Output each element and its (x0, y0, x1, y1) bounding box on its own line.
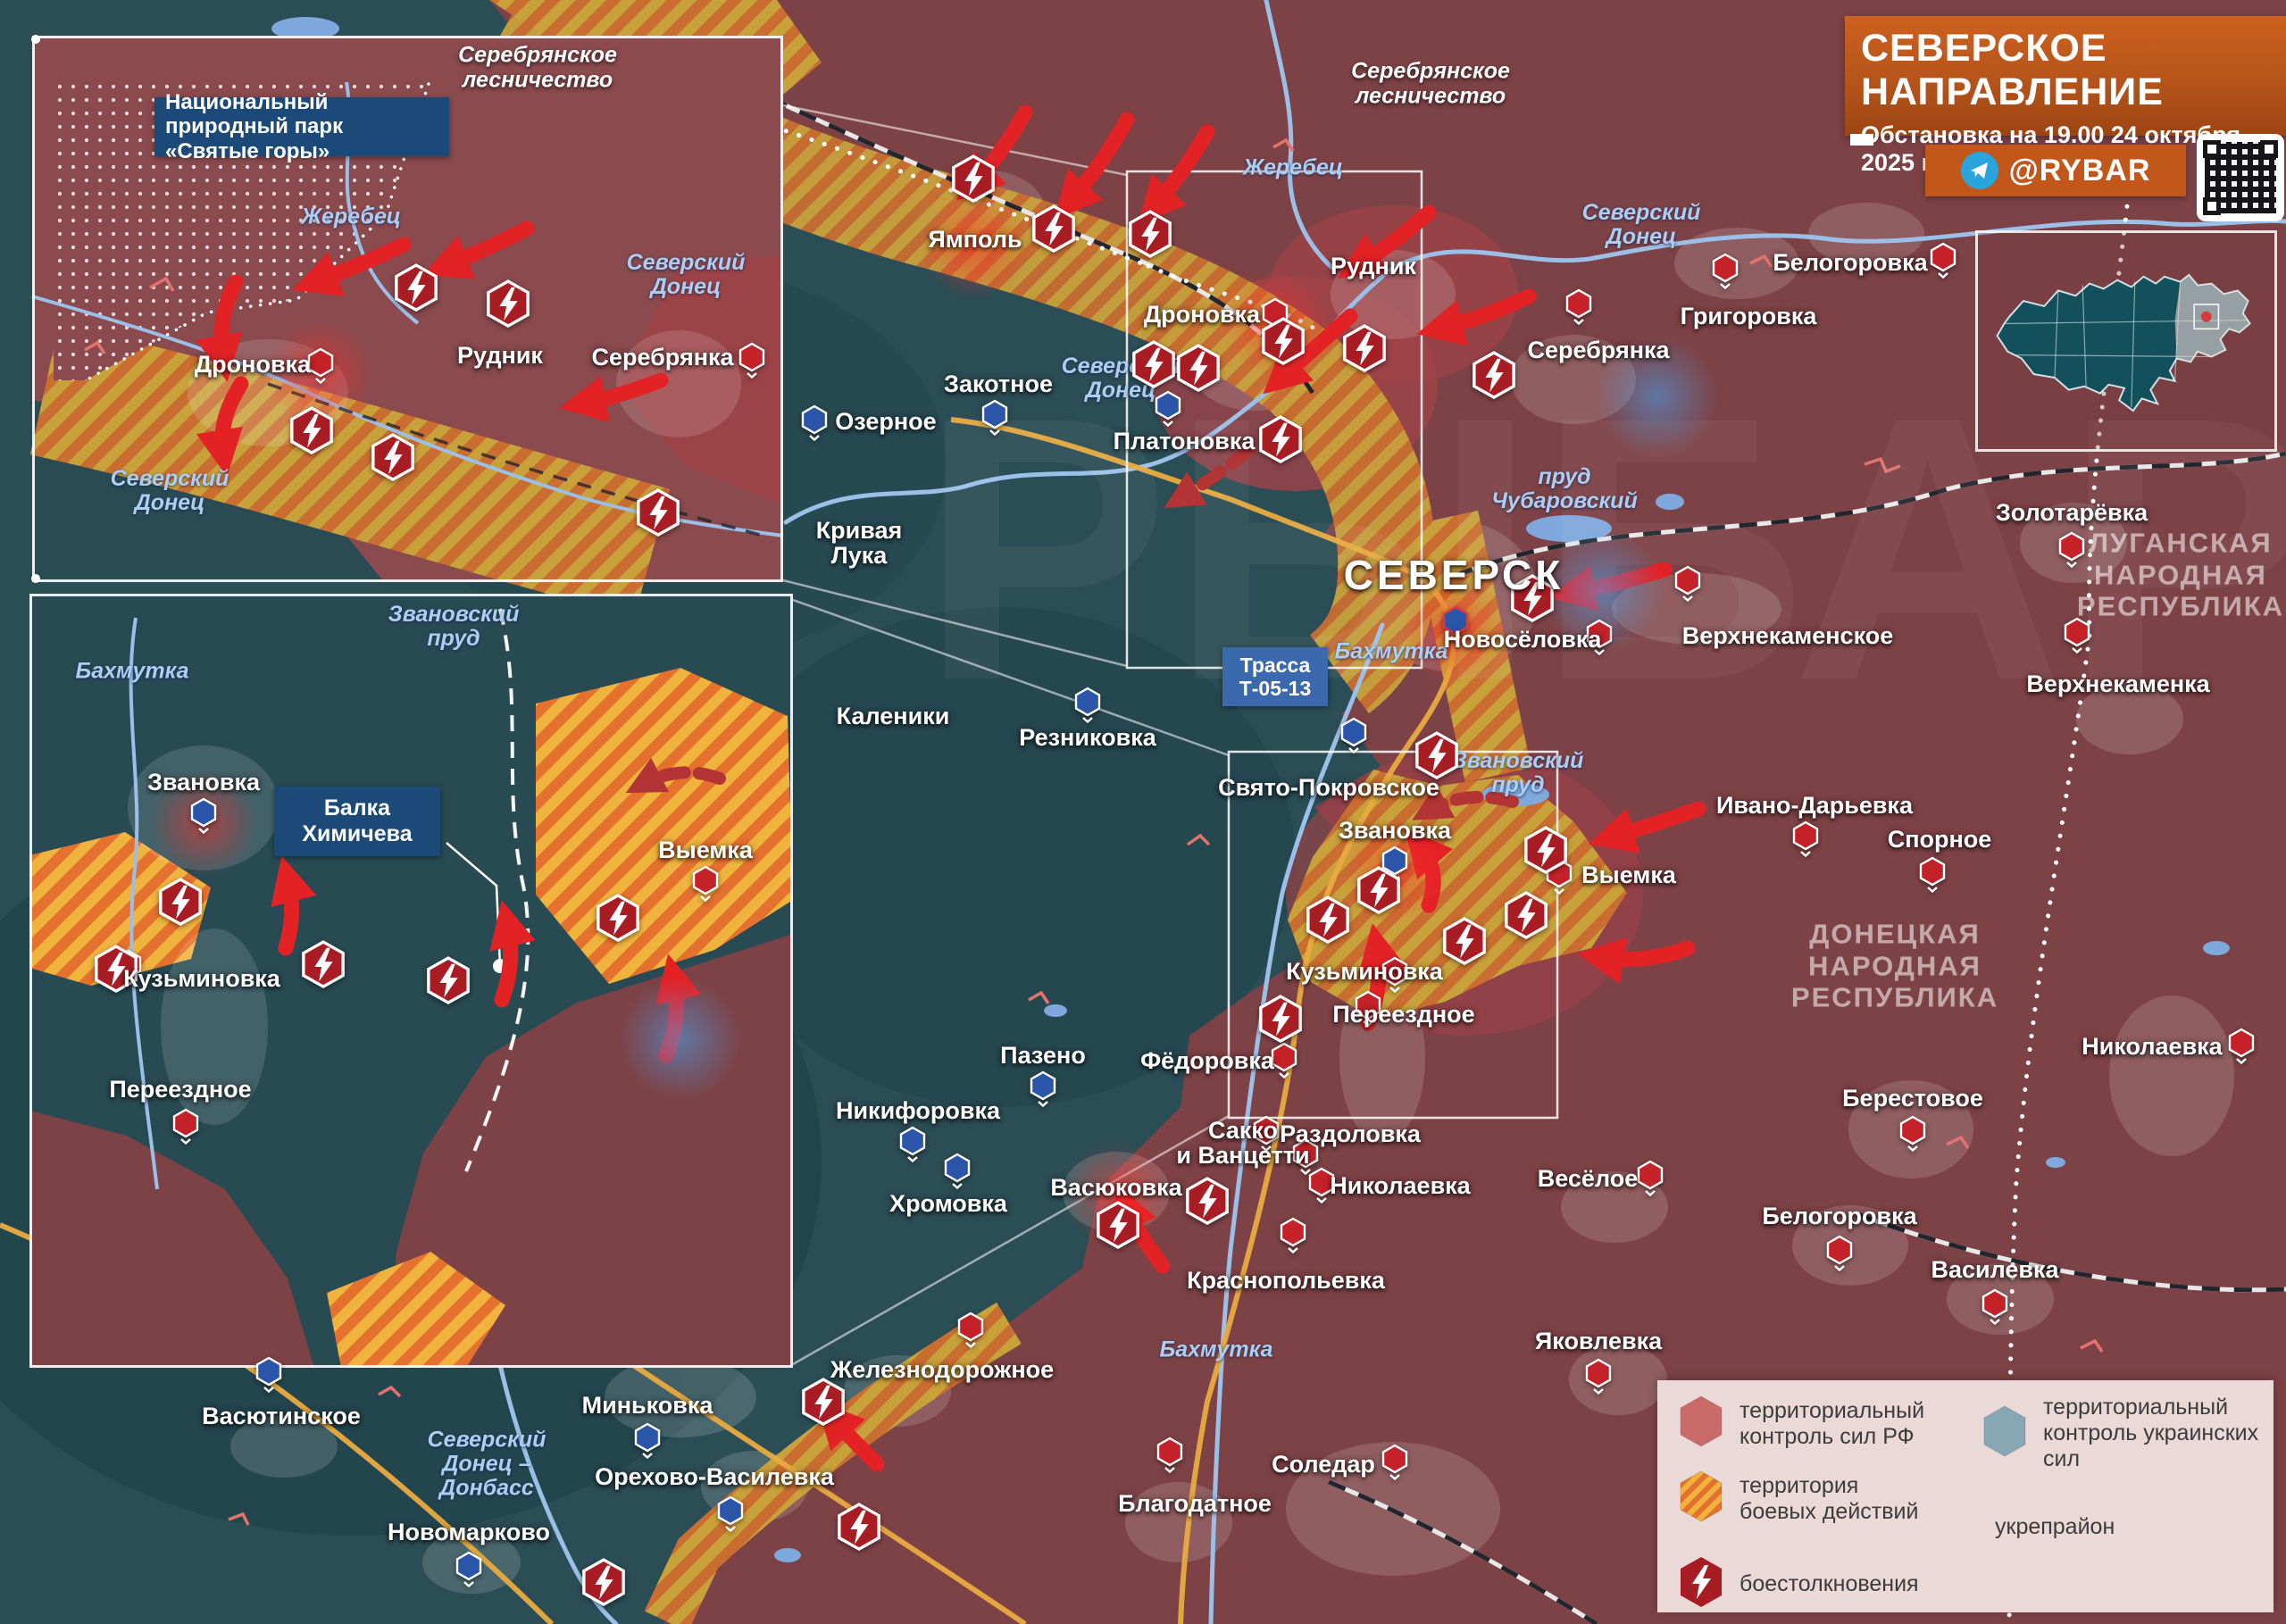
legend-hex-blue-icon (1981, 1404, 2029, 1462)
legend-item: боестолкновения (1677, 1555, 1919, 1613)
ukraine-minimap (1975, 230, 2277, 452)
map-title: СЕВЕРСКОЕ НАПРАВЛЕНИЕ (1861, 27, 2286, 114)
legend-item: укрепрайон (1981, 1514, 2115, 1540)
banner-notch (1850, 134, 1873, 146)
legend-item: территориальный контроль украинских сил (1981, 1395, 2273, 1472)
legend-hex-bolt-icon (1677, 1555, 1725, 1613)
map-legend: территориальный контроль сил РФ территор… (1657, 1380, 2273, 1612)
legend-item: территориальный контроль сил РФ (1677, 1395, 1924, 1453)
legend-item-label: территория боевых действий (1740, 1473, 1918, 1525)
legend-item-label: территориальный контроль украинских сил (2043, 1395, 2273, 1472)
legend-item-label: укрепрайон (1995, 1514, 2115, 1540)
qr-code (2197, 134, 2284, 221)
legend-hex-red-icon (1677, 1395, 1725, 1453)
rybar-channel-label: @RYBAR (2009, 154, 2151, 188)
telegram-icon (1961, 152, 1998, 189)
rybar-badge[interactable]: @RYBAR (1925, 145, 2186, 196)
title-banner: СЕВЕРСКОЕ НАПРАВЛЕНИЕ Обстановка на 19.0… (1845, 16, 2286, 136)
ukraine-outline (1978, 233, 2274, 449)
map-canvas[interactable]: РЫБАР (0, 0, 2286, 1624)
legend-item-label: территориальный контроль сил РФ (1740, 1398, 1924, 1450)
legend-item-label: боестолкновения (1740, 1571, 1919, 1597)
legend-item: территория боевых действий (1677, 1470, 1918, 1528)
legend-hex-hatch-icon (1677, 1470, 1725, 1528)
